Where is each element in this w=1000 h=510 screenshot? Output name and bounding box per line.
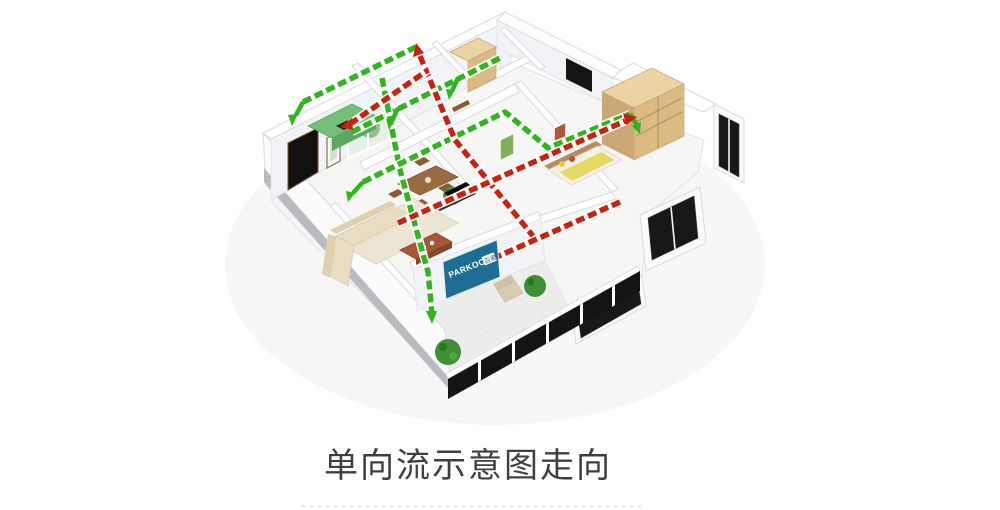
page: PARKOO 百奥 单向流示意图走向 [0,0,1000,510]
floorplan-illustration: PARKOO 百奥 [0,0,1000,510]
caption-title: 单向流示意图走向 [324,438,612,487]
